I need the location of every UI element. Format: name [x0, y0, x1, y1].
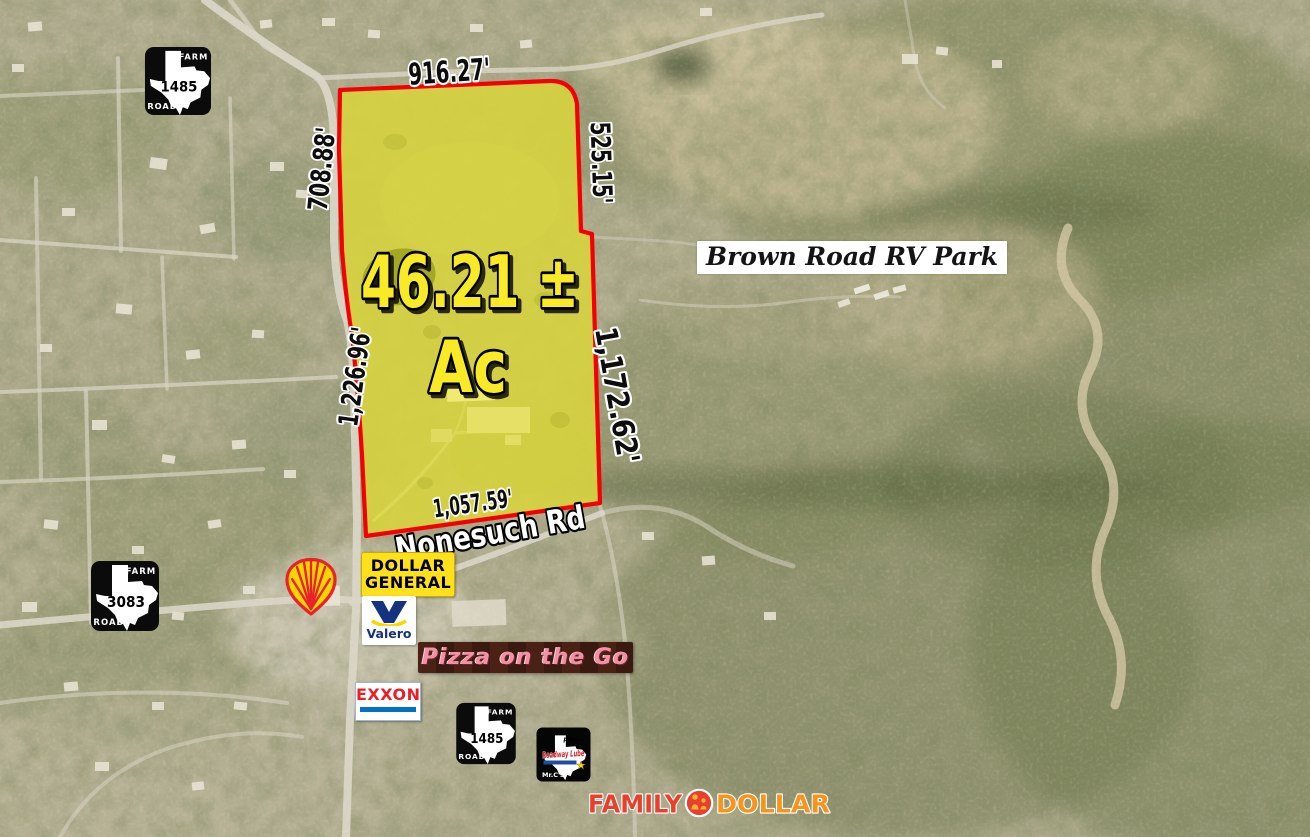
shield-number: 1485 — [470, 732, 503, 747]
fm-1485-shield-top: FARM ROAD 1485 — [144, 40, 212, 122]
mr-cs-text: Mr.C's — [542, 771, 564, 779]
exxon-wordmark: EXXON — [356, 683, 420, 704]
shield-farm-text: FARM — [126, 567, 156, 577]
valero-sign: Valero — [362, 596, 416, 645]
roadway-plus-text: plus... — [562, 736, 584, 743]
family-dollar-emblem-icon — [686, 790, 712, 816]
family-dollar-logo: FAMILY DOLLAR — [586, 787, 832, 820]
dim-north: 916.27' — [407, 52, 491, 93]
rv-park-label: Brown Road RV Park — [697, 241, 1007, 274]
shield-road-text: ROAD — [147, 101, 177, 111]
valero-v-icon — [364, 598, 414, 626]
acreage-value: 46.21 ± — [361, 240, 579, 324]
shield-farm-text: FARM — [179, 52, 209, 62]
dollar-general-line2: GENERAL — [365, 575, 451, 592]
dollar-general-sign: DOLLAR GENERAL — [361, 552, 455, 597]
dollar-wordmark: DOLLAR — [716, 790, 830, 819]
shield-farm-text: FARM — [487, 707, 514, 716]
roadway-lube-sign: plus... Roadway Lube ★ Mr.C's — [536, 727, 591, 782]
fm-1485-shield-bottom: FARM ROAD 1485 — [455, 702, 517, 765]
dollar-general-line1: DOLLAR — [371, 558, 445, 575]
shield-number: 1485 — [161, 79, 198, 96]
shield-road-text: ROAD — [458, 752, 485, 761]
shield-number: 3083 — [107, 593, 145, 611]
family-wordmark: FAMILY — [588, 790, 683, 819]
shield-road-text: ROAD — [93, 618, 124, 628]
aerial-property-flyer: 916.27' 708.88' 525.15' 1,226.96' 1,172.… — [0, 0, 1310, 837]
fm-3083-shield: FARM ROAD 3083 — [90, 558, 160, 634]
roadway-blue-bar — [544, 761, 577, 765]
pizza-on-the-go-text: Pizza on the Go — [422, 645, 629, 670]
aerial-basemap: 916.27' 708.88' 525.15' 1,226.96' 1,172.… — [0, 0, 1310, 837]
valero-wordmark: Valero — [367, 626, 412, 641]
star-icon: ★ — [576, 759, 586, 772]
shell-logo-icon — [284, 556, 338, 618]
exxon-sign: EXXON — [355, 682, 421, 721]
grain-texture — [0, 0, 1310, 837]
pizza-on-the-go-sign: Pizza on the Go — [418, 642, 633, 673]
exxon-blue-bar — [360, 707, 416, 712]
acreage-unit: Ac — [429, 325, 507, 409]
dim-northeast: 525.15' — [584, 121, 618, 204]
